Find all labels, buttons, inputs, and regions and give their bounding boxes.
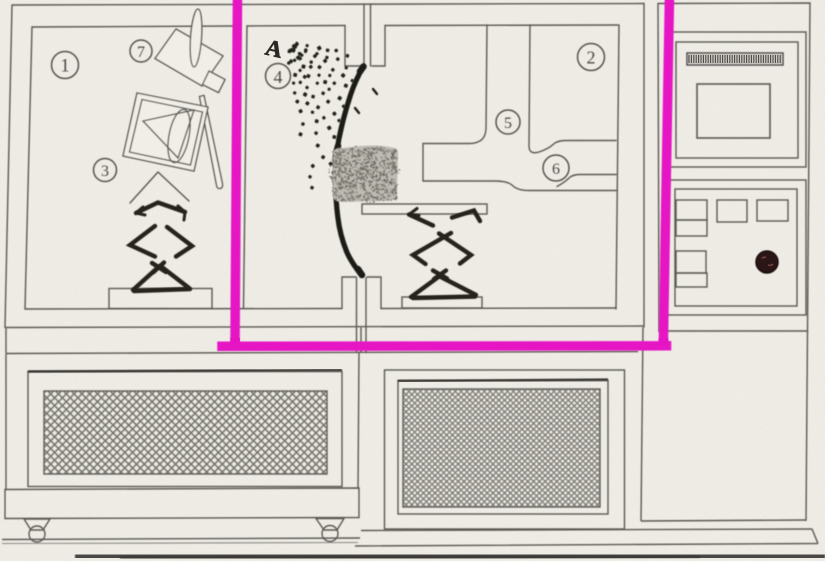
- svg-text:2: 2: [587, 48, 596, 68]
- svg-text:4: 4: [274, 67, 283, 87]
- svg-text:1: 1: [60, 56, 70, 77]
- svg-text:7: 7: [137, 44, 145, 61]
- svg-text:6: 6: [552, 161, 560, 178]
- svg-text:3: 3: [101, 163, 109, 180]
- svg-text:5: 5: [504, 115, 512, 132]
